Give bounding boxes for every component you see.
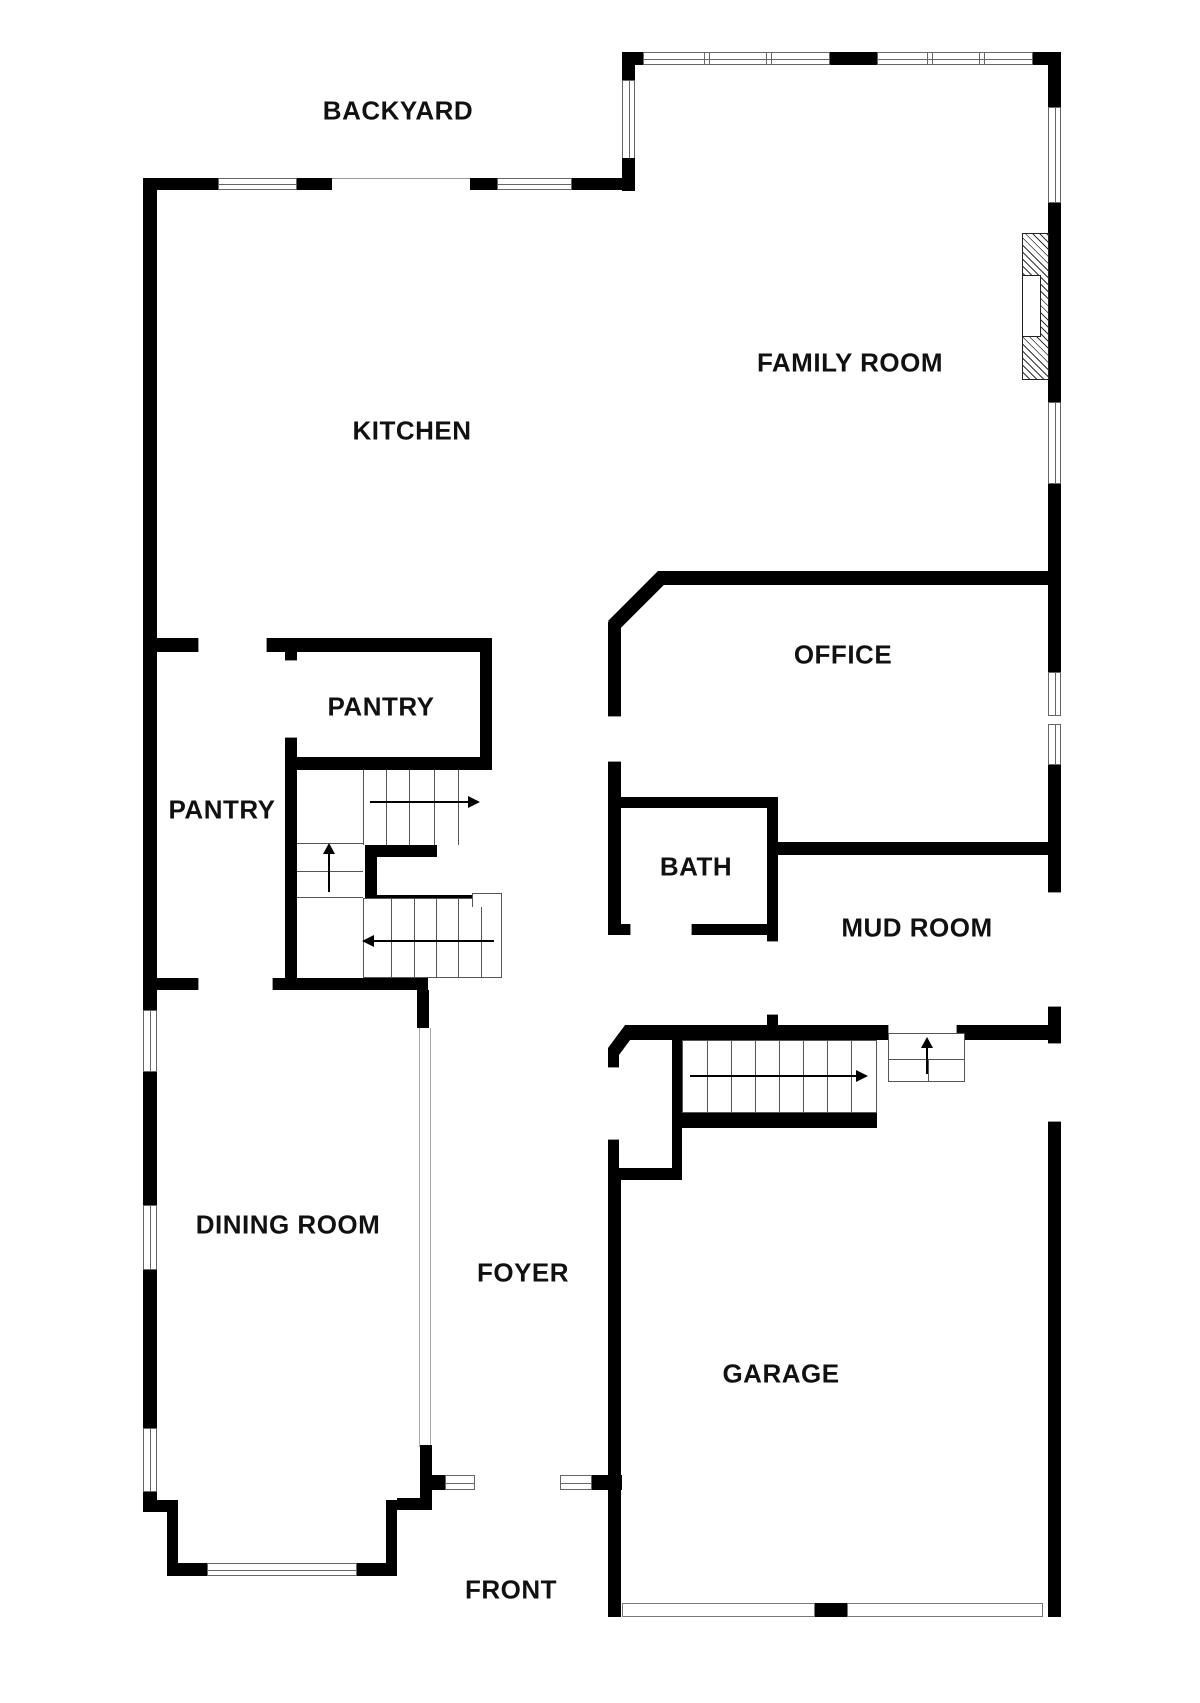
stair-tread	[458, 770, 459, 845]
window	[560, 1475, 592, 1490]
wall	[608, 1168, 682, 1180]
wall	[622, 158, 635, 191]
door-opening	[285, 660, 297, 738]
room-label-dining-room: DINING ROOM	[196, 1210, 381, 1241]
window	[143, 1428, 157, 1492]
wall	[480, 638, 492, 757]
stair-direction-arrow	[370, 801, 470, 803]
wall	[285, 638, 297, 660]
wall	[778, 842, 1048, 855]
stair-tread	[481, 899, 482, 977]
room-label-pantry-upper: PANTRY	[328, 692, 435, 723]
door-opening	[1048, 1043, 1061, 1122]
room-label-office: OFFICE	[794, 640, 892, 671]
wall	[420, 1445, 432, 1510]
wall	[267, 638, 492, 652]
wall	[143, 978, 198, 990]
window	[497, 178, 572, 190]
stair-tread	[928, 1059, 929, 1081]
wall	[622, 52, 643, 65]
cased-opening	[198, 978, 273, 990]
wall	[285, 757, 492, 770]
wall	[672, 1040, 682, 1180]
stair-tread	[458, 899, 459, 977]
wall	[608, 622, 621, 716]
staircase-main-upper-run	[363, 770, 480, 845]
room-label-family-room: FAMILY ROOM	[757, 348, 943, 379]
window-mullion	[979, 53, 985, 64]
stair-tread	[414, 899, 415, 977]
stair-tread	[434, 770, 435, 845]
stair-tread	[386, 770, 387, 845]
wall	[767, 797, 778, 941]
door-opening	[608, 716, 621, 762]
room-label-pantry-lower: PANTRY	[169, 795, 276, 826]
wall	[592, 1475, 622, 1490]
window-mullion	[704, 53, 710, 64]
stair-arrow-head	[323, 843, 335, 854]
stair-direction-arrow	[328, 852, 330, 892]
wall	[830, 52, 877, 65]
area-label-backyard: BACKYARD	[323, 96, 473, 127]
stair-arrow-head	[921, 1037, 933, 1048]
wall	[608, 1180, 621, 1617]
wall	[692, 924, 778, 935]
room-label-mud-room: MUD ROOM	[841, 913, 992, 944]
window-mullion	[766, 53, 772, 64]
wall	[957, 1025, 1048, 1040]
wall	[297, 178, 332, 190]
closet-door-opening	[608, 1067, 619, 1140]
wall	[658, 571, 1048, 585]
window	[1048, 107, 1061, 203]
wall	[143, 1270, 157, 1428]
stair-tread	[409, 770, 410, 845]
stair-tread	[391, 899, 392, 977]
room-label-kitchen: KITCHEN	[352, 416, 471, 447]
wall	[1048, 765, 1061, 892]
stair-tread	[297, 871, 363, 872]
wall	[285, 738, 297, 990]
cased-opening	[198, 638, 267, 652]
room-label-garage: GARAGE	[722, 1359, 839, 1390]
bay-window	[207, 1563, 357, 1576]
stair-direction-arrow	[926, 1046, 928, 1074]
wall	[397, 1498, 420, 1510]
room-label-foyer: FOYER	[477, 1258, 569, 1289]
area-label-front: FRONT	[465, 1575, 557, 1606]
wall	[417, 990, 429, 1028]
window	[622, 80, 635, 160]
wall	[608, 1140, 619, 1168]
wall	[1048, 1122, 1061, 1617]
wall	[432, 1475, 445, 1490]
wall	[143, 178, 218, 190]
stair-tread	[436, 899, 437, 977]
door-opening	[630, 924, 692, 935]
garage-door	[622, 1603, 815, 1617]
staircase-main-lower-run	[363, 898, 502, 978]
wall	[1048, 1007, 1061, 1043]
wall	[608, 1048, 619, 1067]
window	[877, 52, 1033, 65]
wall	[608, 762, 621, 935]
fireplace-firebox	[1022, 275, 1041, 337]
wall	[386, 1500, 397, 1575]
stair-arrow-head	[362, 935, 374, 947]
wall	[1048, 52, 1061, 107]
door-opening	[1048, 892, 1061, 1007]
room-divider-line	[419, 1028, 431, 1447]
window-mullion	[927, 53, 933, 64]
wall	[608, 924, 630, 935]
window	[643, 52, 830, 65]
wall	[273, 978, 428, 990]
wall	[608, 797, 778, 808]
window	[218, 178, 297, 190]
sliding-door-opening	[332, 178, 470, 190]
wall	[1048, 484, 1061, 672]
garage-door	[847, 1603, 1043, 1617]
stair-arrow-head	[468, 796, 480, 808]
wall	[470, 178, 497, 190]
wall	[143, 638, 198, 652]
wall	[815, 1603, 847, 1617]
wall	[143, 178, 157, 1010]
window	[143, 1205, 157, 1270]
wall	[625, 1025, 888, 1040]
window	[143, 1010, 157, 1072]
window	[1048, 672, 1061, 716]
wall	[1048, 203, 1061, 402]
stair-direction-arrow	[690, 1075, 856, 1077]
wall	[672, 1113, 877, 1128]
stair-arrow-head	[856, 1070, 868, 1082]
window	[1048, 402, 1061, 484]
floor-plan: BACKYARD FAMILY ROOM KITCHEN OFFICE PANT…	[0, 0, 1200, 1703]
wall	[143, 1072, 157, 1205]
door-opening	[767, 941, 778, 1015]
room-label-bath: BATH	[660, 852, 732, 883]
stair-landing-edge	[472, 893, 502, 907]
window	[1048, 724, 1061, 765]
window	[445, 1475, 475, 1490]
stair-direction-arrow	[374, 940, 494, 942]
wall	[167, 1563, 207, 1576]
